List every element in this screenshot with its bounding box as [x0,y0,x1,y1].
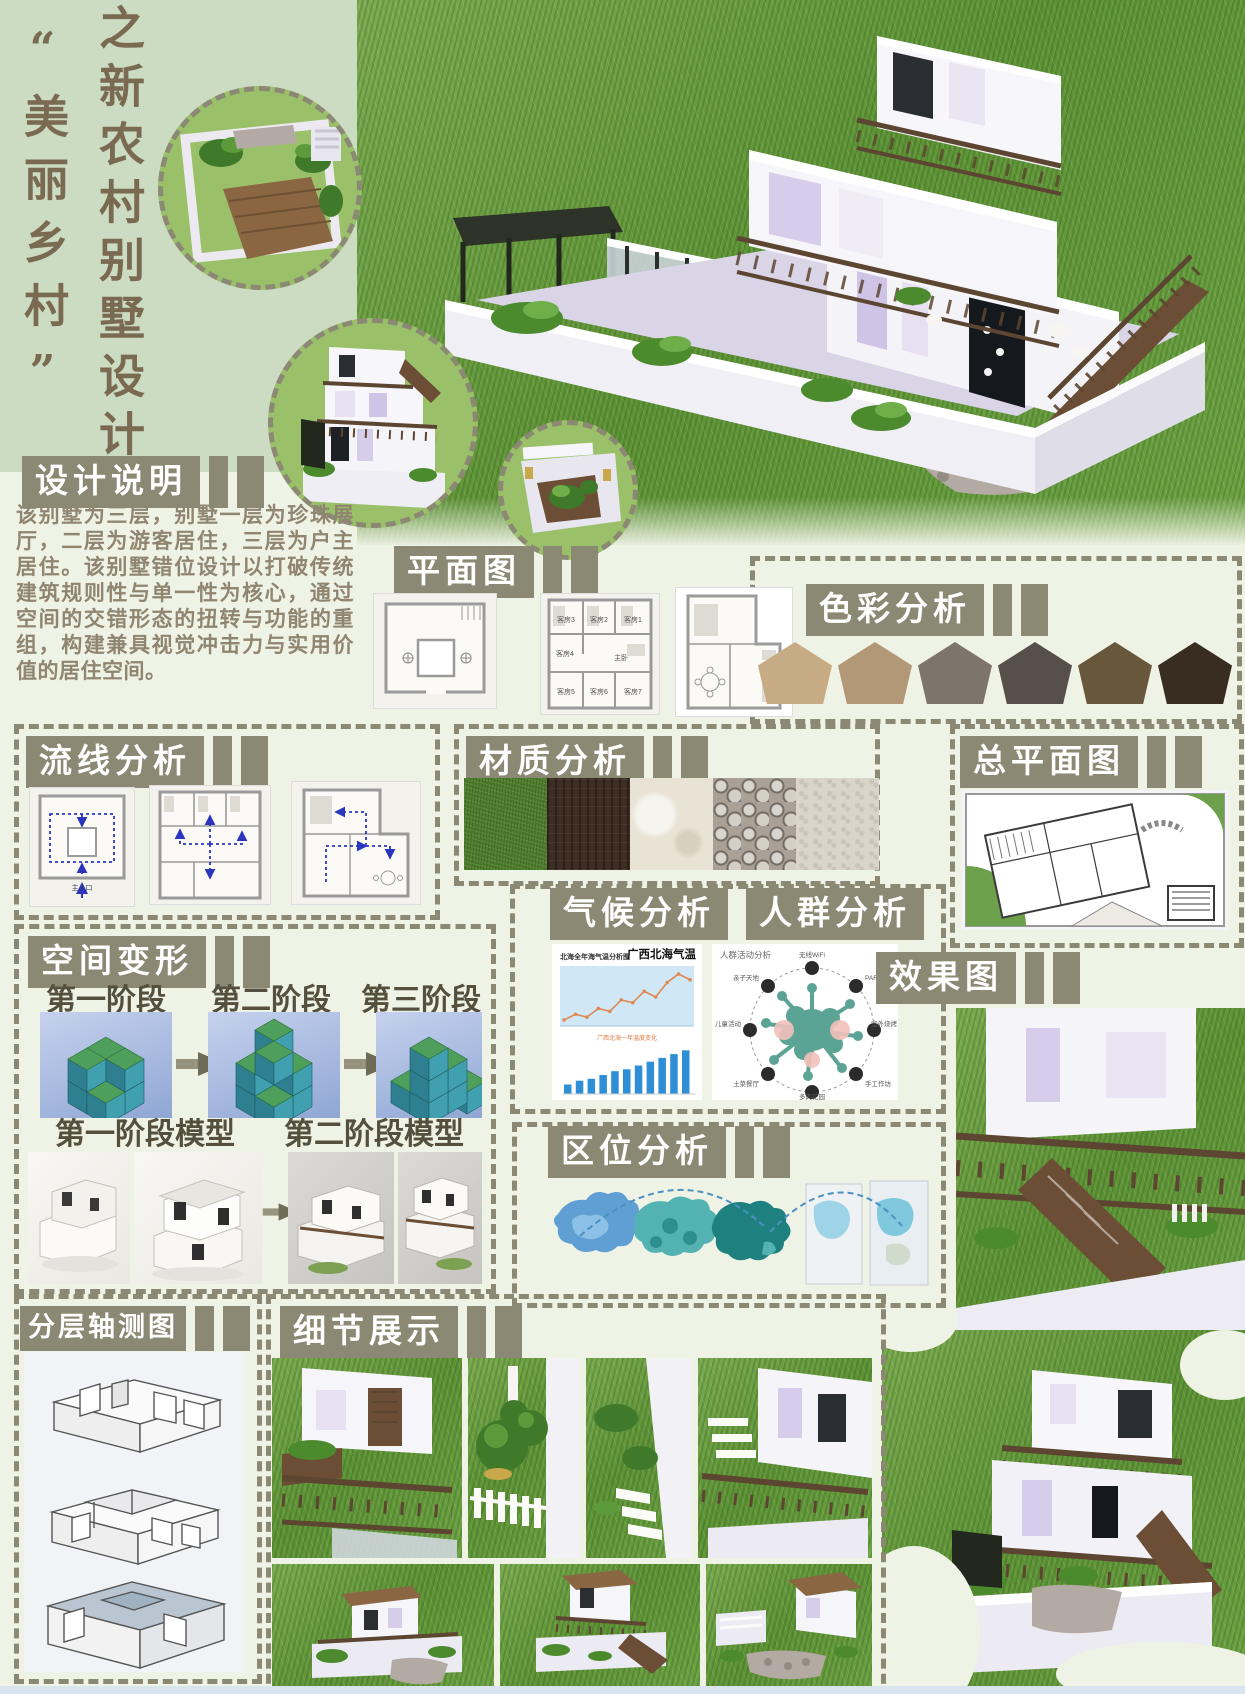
header-square [215,936,234,988]
detail-photo-6 [500,1564,700,1694]
space-transform-title: 空间变形 [28,936,206,988]
detail-photo-4 [698,1358,872,1558]
poster-root: 之新农村别墅设计 “美丽乡村” [0,0,1245,1694]
render-photo-1 [956,1008,1245,1368]
header-square [571,546,598,598]
circle-photo-terrace [498,420,638,560]
header-square [467,1306,486,1358]
svg-text:客房3: 客房3 [557,615,575,624]
site-plan-title: 总平面图 [960,736,1138,788]
stage-model-label-1: 第一阶段模型 [30,1120,260,1150]
axonometric-title: 分层轴测图 [20,1306,186,1351]
hero-photo [357,0,1245,545]
svg-text:客房1: 客房1 [624,615,642,624]
climate-chart-card: 北海全年海气温分析图 广西北海气温 广西北海一年温度变化 [552,944,702,1100]
section-render-header: 效果图 [876,952,1080,1004]
header-square [1175,736,1202,788]
material-swatch-dark-wood [547,778,630,870]
design-notes-title: 设计说明 [22,456,200,508]
hero-villa-model [357,0,1245,545]
stage-image-3 [376,1012,482,1118]
color-analysis-title: 色彩分析 [806,584,984,636]
climate-title: 气候分析 [550,888,728,940]
section-details-header: 细节展示 [280,1306,522,1358]
header-square [223,1306,250,1351]
circle-photo-villa [268,318,478,528]
detail-photo-5 [272,1564,494,1694]
axonometric-drawings [24,1352,244,1672]
material-swatch-marble [630,778,713,870]
detail-photo-3 [586,1358,692,1558]
stage-model-photo-4 [398,1152,482,1284]
section-color-analysis-header: 色彩分析 [806,584,1048,636]
svg-text:亲子天地: 亲子天地 [733,973,760,982]
header-square [237,456,264,508]
crowd-activity-diagram: 人群活动分析 无线WiFi PARTY聚会 室外烧烤 手工作坊 多肉花园 土菜餐… [712,944,898,1100]
svg-text:土菜餐厅: 土菜餐厅 [733,1079,760,1088]
poster-theme-title: “美丽乡村” [10,22,75,416]
header-square [1147,736,1166,788]
svg-text:客房2: 客房2 [590,615,608,624]
poster-series-title: 之新农村别墅设计 [86,4,152,468]
svg-text:客房5: 客房5 [557,687,575,696]
svg-text:主入口: 主入口 [72,883,93,892]
stage-model-photo-1 [28,1152,130,1284]
circulation-plan-3 [292,782,420,904]
circle-photo-aerial [158,86,362,290]
section-design-notes-header: 设计说明 [22,456,264,508]
circulation-plan-1: 主入口 [30,788,134,906]
location-maps [520,1176,930,1292]
svg-text:北海全年海气温分析图: 北海全年海气温分析图 [560,952,630,961]
section-climate-header: 气候分析 [550,888,728,940]
section-space-transform-header: 空间变形 [28,936,270,988]
material-swatch-grass [464,778,547,870]
svg-text:室外烧烤: 室外烧烤 [871,1019,898,1028]
svg-text:无线WiFi: 无线WiFi [799,950,825,959]
svg-text:广西北海气温: 广西北海气温 [627,947,696,961]
header-square [495,1306,522,1358]
header-square [763,1126,790,1178]
section-location-header: 区位分析 [548,1126,790,1178]
svg-text:客房6: 客房6 [590,687,608,696]
crowd-diagram-card: 人群活动分析 无线WiFi PARTY聚会 室外烧烤 手工作坊 多肉花园 土菜餐… [712,944,898,1100]
header-square [243,936,270,988]
header-square [1025,952,1044,1004]
material-swatch-stucco [796,778,879,870]
header-square [213,736,232,788]
svg-text:儿童活动: 儿童活动 [715,1019,742,1028]
stage-image-2 [208,1012,340,1118]
header-square [241,736,268,788]
climate-chart: 北海全年海气温分析图 广西北海气温 广西北海一年温度变化 [552,944,702,1100]
circulation-plan-2 [150,786,270,904]
section-site-plan-header: 总平面图 [960,736,1202,788]
header-square [209,456,228,508]
svg-text:主卧: 主卧 [614,653,628,662]
stage-model-label-2: 第二阶段模型 [262,1120,486,1150]
svg-text:多肉花园: 多肉花园 [799,1092,825,1100]
svg-text:客房7: 客房7 [624,687,642,696]
svg-text:广西北海一年温度变化: 广西北海一年温度变化 [597,1034,657,1042]
section-crowd-header: 人群分析 [746,888,924,940]
header-square [1021,584,1048,636]
detail-photo-1 [272,1358,462,1558]
design-notes-body: 该别墅为三层，别墅一层为珍珠展厅，二层为游客居住，三层为户主居住。该别墅错位设计… [16,503,354,685]
crowd-title: 人群分析 [746,888,924,940]
stage-model-arrow [263,1203,287,1220]
floor-plan-thumb-2: 客房3 客房2 客房1 客房4 主卧 客房5 客房6 客房7 [541,594,659,714]
header-square [1053,952,1080,1004]
floor-plan-thumb-1 [374,594,496,708]
stage-image-1 [40,1012,172,1118]
section-floor-plan-header: 平面图 [394,546,598,598]
stage-model-photo-2 [134,1152,262,1284]
section-axonometric-header: 分层轴测图 [20,1306,250,1351]
footer-strip [0,1686,1245,1694]
site-plan-drawing [962,790,1228,930]
details-title: 细节展示 [280,1306,458,1358]
stage-model-photo-3 [288,1152,394,1284]
detail-photo-7 [706,1564,872,1694]
header-square [543,546,562,598]
header-square [993,584,1012,636]
hero-photo-fade [357,497,1245,547]
location-title: 区位分析 [548,1126,726,1178]
material-swatch-cobblestone [713,778,796,870]
svg-text:手工作坊: 手工作坊 [865,1079,892,1088]
svg-text:人群活动分析: 人群活动分析 [720,950,772,960]
header-square [195,1306,214,1351]
section-circulation-header: 流线分析 [26,736,268,788]
floor-plan-title: 平面图 [394,546,534,598]
circulation-title: 流线分析 [26,736,204,788]
svg-text:客房4: 客房4 [556,649,574,658]
render-title: 效果图 [876,952,1016,1004]
detail-photo-2 [468,1358,580,1558]
header-square [735,1126,754,1178]
